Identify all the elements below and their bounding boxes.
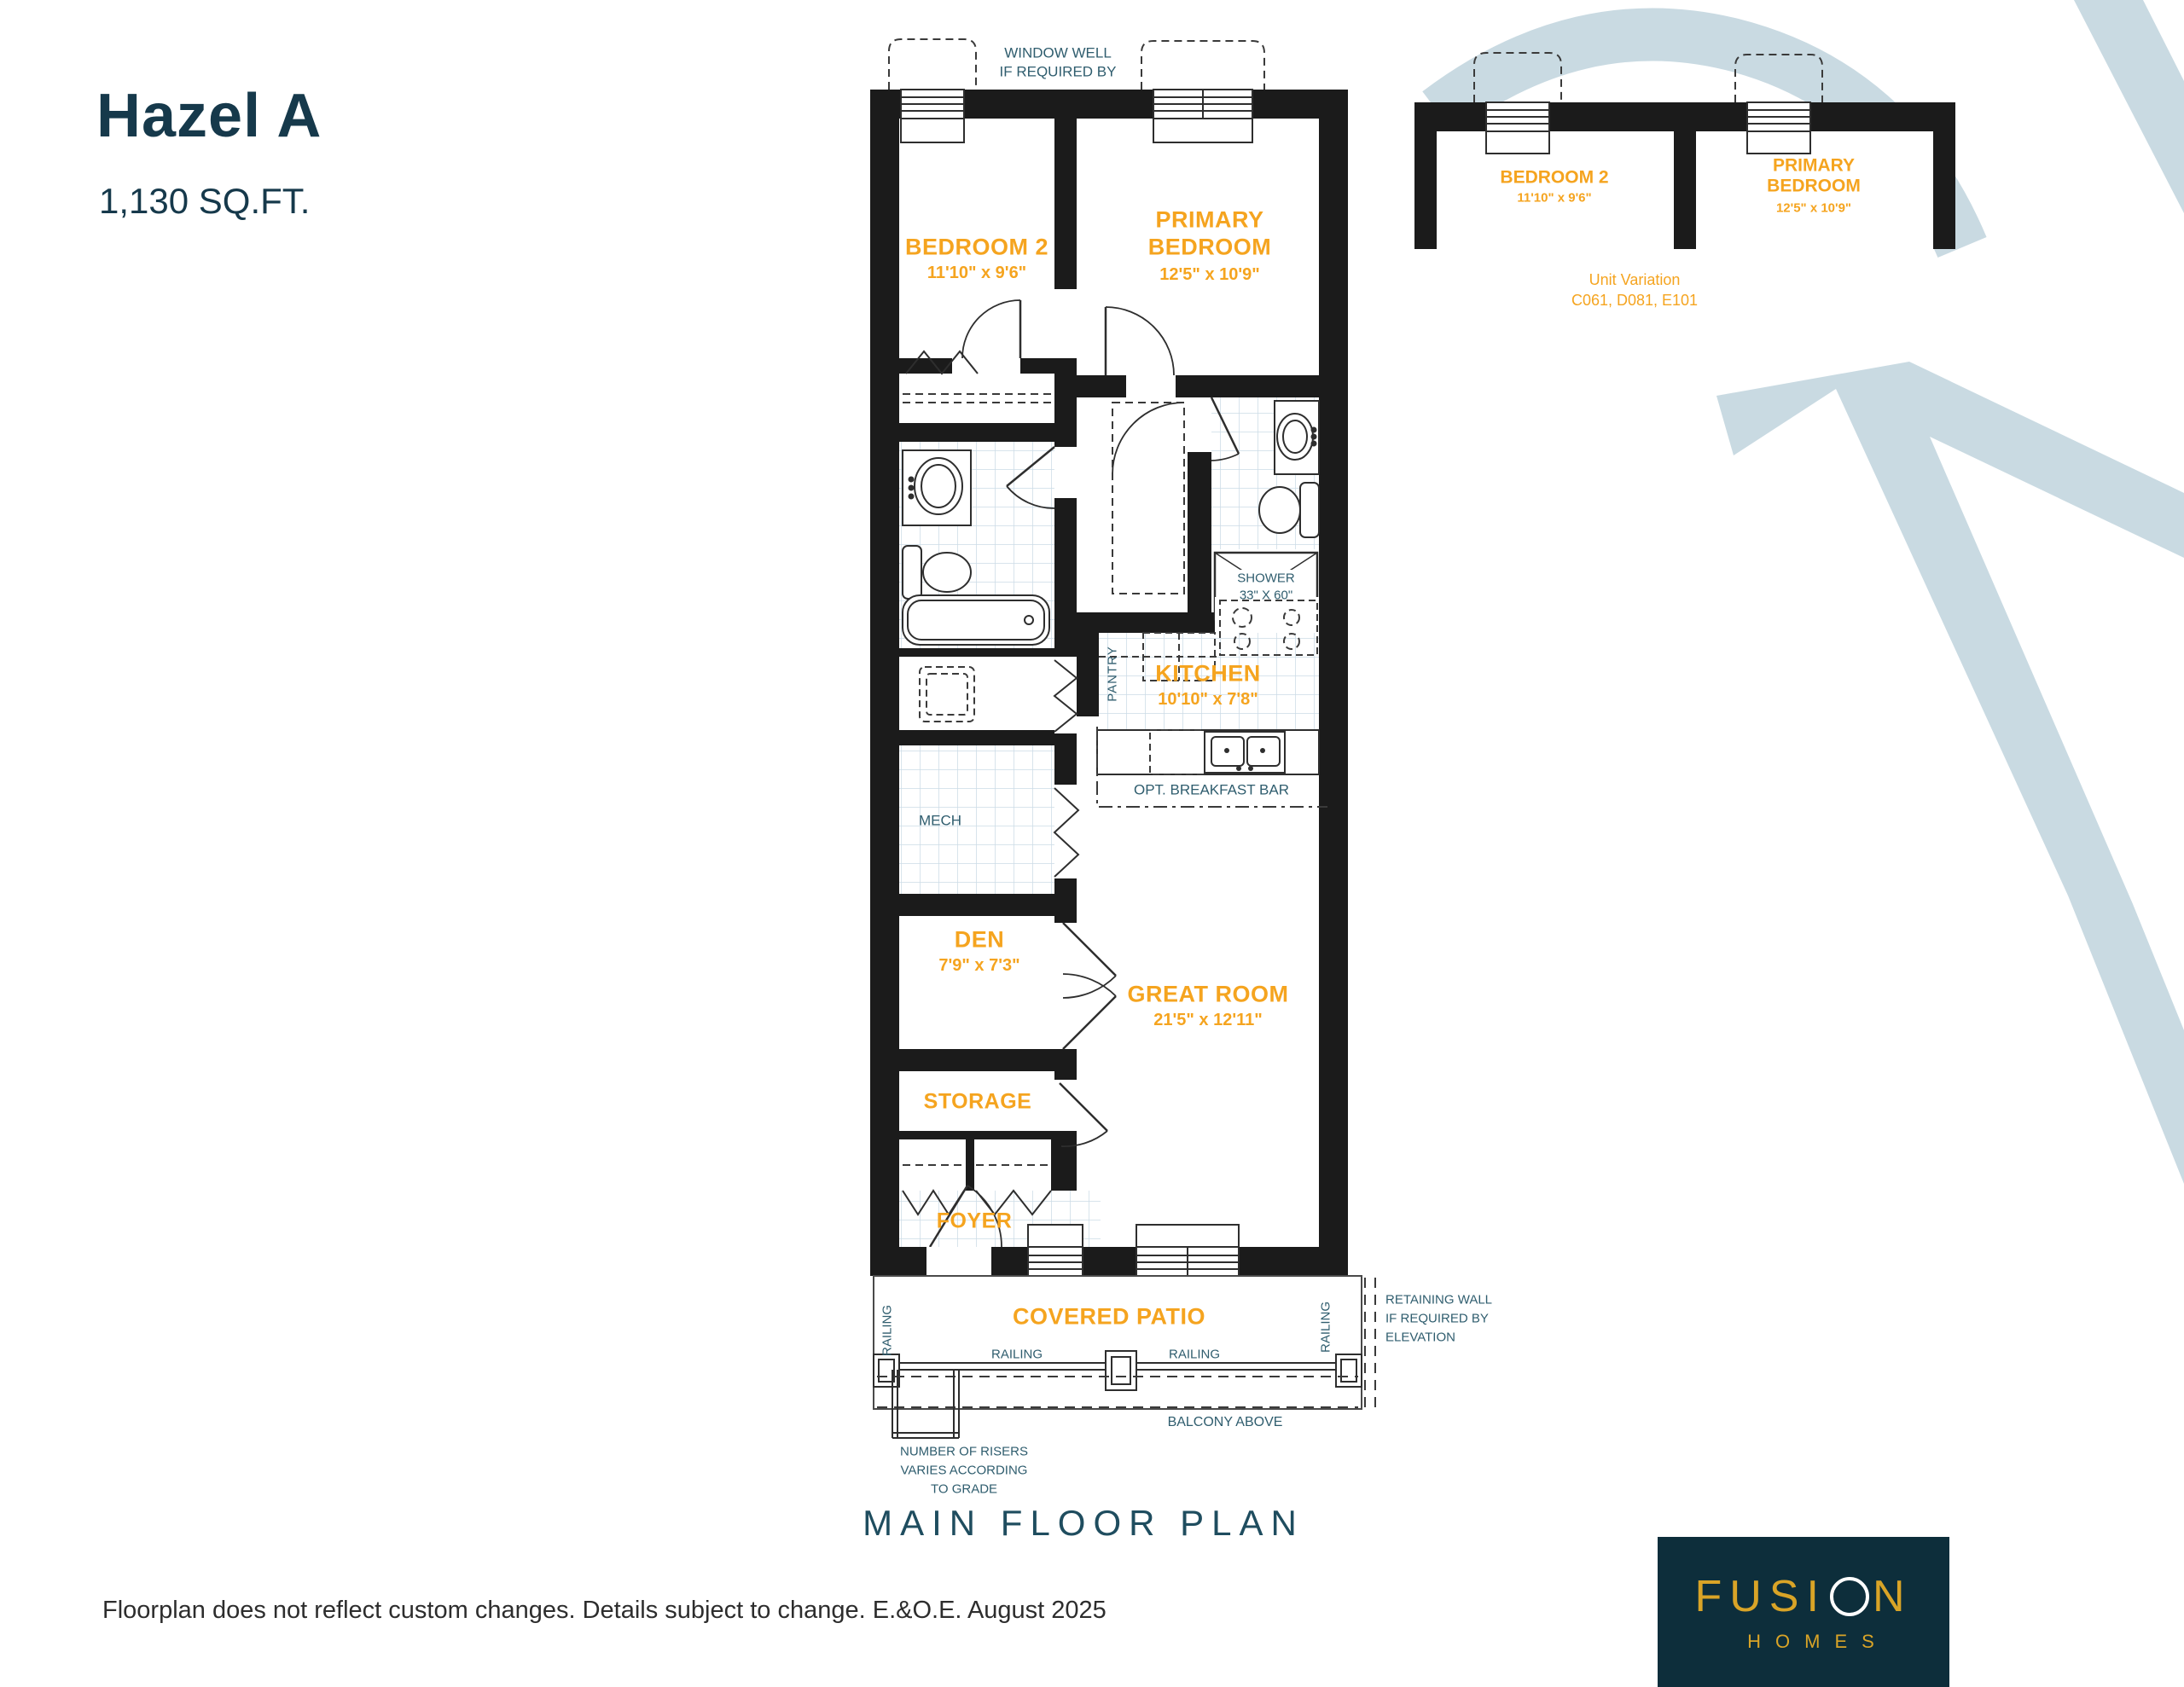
- retaining-wall-line2: IF REQUIRED BY: [1385, 1313, 1489, 1325]
- room-dims-primary: 12'5" x 10'9": [1159, 266, 1259, 283]
- balcony-above-label: BALCONY ABOVE: [1168, 1416, 1283, 1429]
- fusion-homes-logo: FUSIN HOMES: [1658, 1537, 1949, 1687]
- room-label-foyer: FOYER: [937, 1211, 1013, 1232]
- logo-brand-suffix: N: [1873, 1571, 1913, 1622]
- variation-plan: [1414, 53, 1955, 249]
- room-label-storage: STORAGE: [924, 1092, 1032, 1113]
- shower-label-line1: SHOWER: [1237, 572, 1295, 585]
- room-label-primary-line2: BEDROOM: [1148, 236, 1272, 259]
- room-dims-great-room: 21'5" x 12'11": [1153, 1012, 1262, 1029]
- variation-bedroom2-dims: 11'10" x 9'6": [1517, 192, 1591, 205]
- retaining-wall-line3: ELEVATION: [1385, 1331, 1455, 1344]
- pantry-label: PANTRY: [1107, 646, 1119, 701]
- variation-bedroom2-label: BEDROOM 2: [1500, 169, 1608, 187]
- room-label-great-room: GREAT ROOM: [1128, 983, 1289, 1006]
- shower-label-line2: 33" X 60": [1240, 589, 1292, 602]
- room-dims-bedroom2: 11'10" x 9'6": [927, 264, 1026, 281]
- floorplan-sheet: Hazel A 1,130 SQ.FT. WINDOW WELL IF REQU…: [0, 0, 2184, 1687]
- risers-note-line1: NUMBER OF RISERS: [900, 1446, 1028, 1458]
- steps: [892, 1370, 959, 1438]
- patio: [874, 1276, 1375, 1438]
- window-well-note-line2: IF REQUIRED BY: [1000, 65, 1117, 79]
- variation-caption-line1: Unit Variation: [1589, 272, 1681, 287]
- variation-primary-label-line1: PRIMARY: [1773, 157, 1855, 175]
- room-dims-den: 7'9" x 7'3": [938, 957, 1019, 974]
- logo-brand: FUSIN: [1694, 1571, 1912, 1622]
- room-label-den: DEN: [955, 929, 1005, 952]
- page-area: 1,130 SQ.FT.: [99, 181, 310, 222]
- railing-label-bottom2: RAILING: [1169, 1348, 1220, 1361]
- window-well-note-line1: WINDOW WELL: [1004, 46, 1112, 61]
- risers-note-line3: TO GRADE: [931, 1483, 997, 1496]
- plan-title: MAIN FLOOR PLAN: [863, 1503, 1304, 1544]
- risers-note-line2: VARIES ACCORDING: [901, 1464, 1028, 1477]
- variation-caption-line2: C061, D081, E101: [1571, 293, 1698, 308]
- logo-brand-prefix: FUSI: [1694, 1571, 1826, 1622]
- logo-homes: HOMES: [1747, 1631, 1889, 1653]
- retaining-wall-line1: RETAINING WALL: [1385, 1294, 1492, 1307]
- mech-label: MECH: [919, 814, 961, 828]
- disclaimer: Floorplan does not reflect custom change…: [102, 1597, 1107, 1625]
- room-label-covered-patio: COVERED PATIO: [1013, 1306, 1205, 1329]
- breakfast-bar-label: OPT. BREAKFAST BAR: [1134, 783, 1289, 797]
- variation-primary-dims: 12'5" x 10'9": [1776, 202, 1851, 215]
- room-label-primary-line1: PRIMARY: [1155, 209, 1263, 232]
- railing-label-left: RAILING: [881, 1305, 894, 1356]
- railing-label-bottom1: RAILING: [991, 1348, 1043, 1361]
- railing-label-right: RAILING: [1320, 1301, 1333, 1353]
- page-title: Hazel A: [96, 81, 322, 151]
- room-label-bedroom2: BEDROOM 2: [905, 236, 1048, 259]
- plan-graphics: [0, 0, 2184, 1687]
- room-label-kitchen: KITCHEN: [1155, 663, 1261, 686]
- logo-o-ring: [1830, 1577, 1869, 1616]
- room-dims-kitchen: 10'10" x 7'8": [1158, 691, 1258, 708]
- variation-primary-label-line2: BEDROOM: [1767, 177, 1861, 195]
